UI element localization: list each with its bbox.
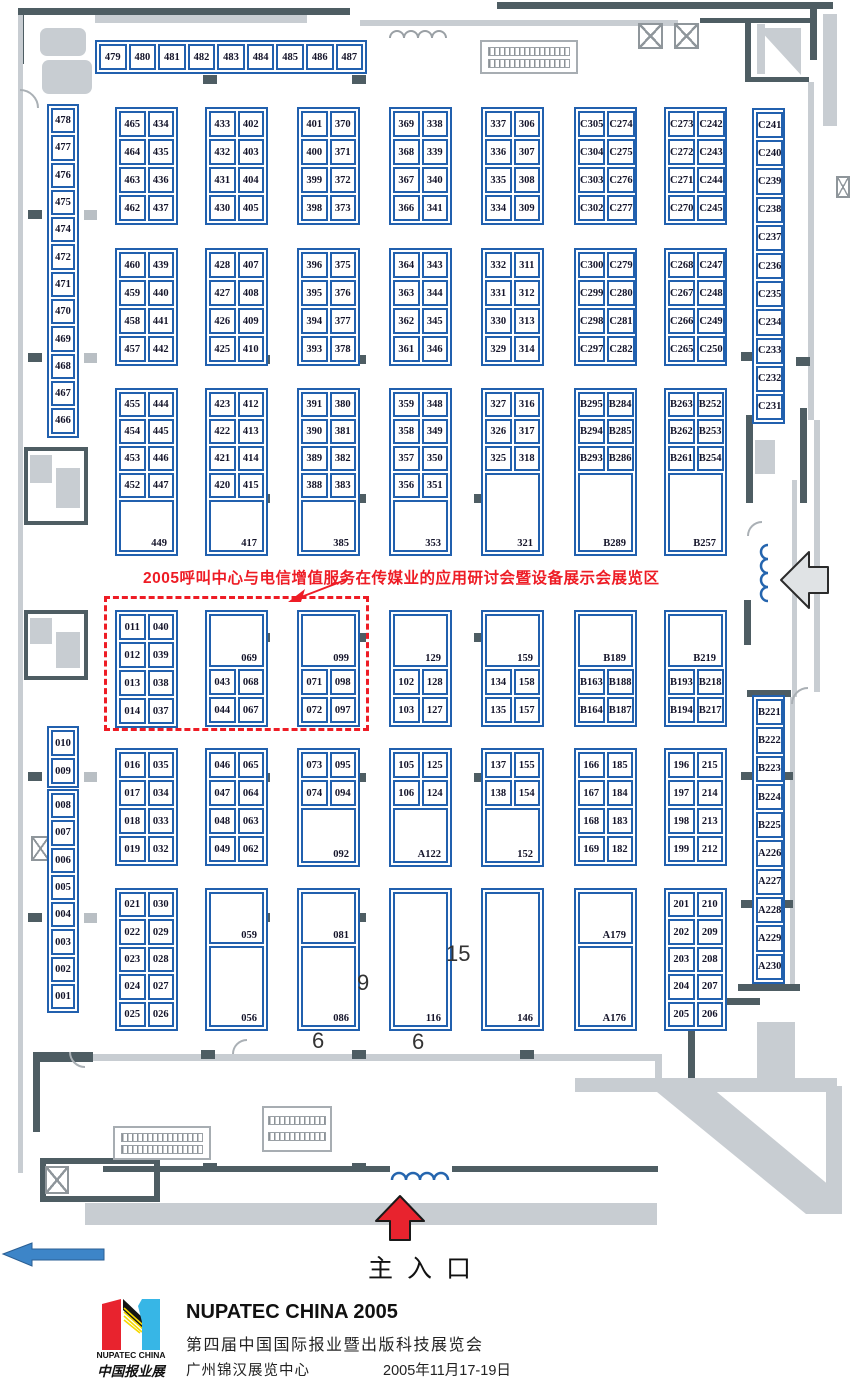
- booth-001[interactable]: 001: [51, 984, 75, 1009]
- booth-033[interactable]: 033: [148, 808, 175, 834]
- booth-B293[interactable]: B293: [578, 446, 605, 471]
- booth-152[interactable]: 152: [485, 808, 540, 863]
- booth-C271[interactable]: C271: [668, 167, 695, 193]
- booth-412[interactable]: 412: [238, 392, 265, 417]
- booth-204[interactable]: 204: [668, 974, 695, 999]
- booth-415[interactable]: 415: [238, 473, 265, 498]
- booth-472[interactable]: 472: [51, 244, 75, 269]
- booth-210[interactable]: 210: [697, 892, 724, 917]
- booth-A122[interactable]: A122: [393, 808, 448, 863]
- booth-422[interactable]: 422: [209, 419, 236, 444]
- booth-445[interactable]: 445: [148, 419, 175, 444]
- booth-135[interactable]: 135: [485, 697, 512, 723]
- booth-C302[interactable]: C302: [578, 195, 605, 221]
- booth-094[interactable]: 094: [330, 780, 357, 806]
- booth-483[interactable]: 483: [217, 44, 245, 70]
- booth-404[interactable]: 404: [238, 167, 265, 193]
- booth-086[interactable]: 086: [301, 946, 356, 1027]
- booth-316[interactable]: 316: [514, 392, 541, 417]
- booth-154[interactable]: 154: [514, 780, 541, 806]
- booth-381[interactable]: 381: [330, 419, 357, 444]
- booth-125[interactable]: 125: [422, 752, 449, 778]
- booth-367[interactable]: 367: [393, 167, 420, 193]
- booth-409[interactable]: 409: [238, 308, 265, 334]
- booth-C232[interactable]: C232: [756, 366, 783, 392]
- booth-167[interactable]: 167: [578, 780, 605, 806]
- booth-021[interactable]: 021: [119, 892, 146, 917]
- booth-C242[interactable]: C242: [697, 111, 724, 137]
- booth-C298[interactable]: C298: [578, 308, 605, 334]
- booth-048[interactable]: 048: [209, 808, 236, 834]
- booth-435[interactable]: 435: [148, 139, 175, 165]
- booth-C297[interactable]: C297: [578, 336, 605, 362]
- booth-321[interactable]: 321: [485, 473, 540, 552]
- booth-B295[interactable]: B295: [578, 392, 605, 417]
- booth-157[interactable]: 157: [514, 697, 541, 723]
- booth-B187[interactable]: B187: [607, 697, 634, 723]
- booth-474[interactable]: 474: [51, 217, 75, 242]
- booth-477[interactable]: 477: [51, 135, 75, 160]
- booth-C231[interactable]: C231: [756, 394, 783, 420]
- booth-413[interactable]: 413: [238, 419, 265, 444]
- booth-065[interactable]: 065: [238, 752, 265, 778]
- booth-C305[interactable]: C305: [578, 111, 605, 137]
- booth-309[interactable]: 309: [514, 195, 541, 221]
- booth-146[interactable]: 146: [485, 892, 540, 1027]
- booth-A176[interactable]: A176: [578, 946, 633, 1027]
- booth-B286[interactable]: B286: [607, 446, 634, 471]
- booth-470[interactable]: 470: [51, 299, 75, 324]
- booth-318[interactable]: 318: [514, 446, 541, 471]
- booth-C247[interactable]: C247: [697, 252, 724, 278]
- booth-030[interactable]: 030: [148, 892, 175, 917]
- booth-B223[interactable]: B223: [756, 756, 783, 782]
- booth-B262[interactable]: B262: [668, 419, 695, 444]
- booth-481[interactable]: 481: [158, 44, 186, 70]
- booth-361[interactable]: 361: [393, 336, 420, 362]
- booth-B188[interactable]: B188: [607, 669, 634, 695]
- booth-306[interactable]: 306: [514, 111, 541, 137]
- booth-027[interactable]: 027: [148, 974, 175, 999]
- booth-C244[interactable]: C244: [697, 167, 724, 193]
- booth-017[interactable]: 017: [119, 780, 146, 806]
- booth-437[interactable]: 437: [148, 195, 175, 221]
- booth-428[interactable]: 428: [209, 252, 236, 278]
- booth-059[interactable]: 059: [209, 892, 264, 944]
- booth-363[interactable]: 363: [393, 280, 420, 306]
- booth-427[interactable]: 427: [209, 280, 236, 306]
- booth-105[interactable]: 105: [393, 752, 420, 778]
- booth-C237[interactable]: C237: [756, 225, 783, 251]
- booth-414[interactable]: 414: [238, 446, 265, 471]
- booth-452[interactable]: 452: [119, 473, 146, 498]
- booth-405[interactable]: 405: [238, 195, 265, 221]
- booth-B163[interactable]: B163: [578, 669, 605, 695]
- booth-331[interactable]: 331: [485, 280, 512, 306]
- booth-349[interactable]: 349: [422, 419, 449, 444]
- booth-159[interactable]: 159: [485, 614, 540, 667]
- booth-330[interactable]: 330: [485, 308, 512, 334]
- booth-A179[interactable]: A179: [578, 892, 633, 944]
- booth-375[interactable]: 375: [330, 252, 357, 278]
- booth-339[interactable]: 339: [422, 139, 449, 165]
- booth-206[interactable]: 206: [697, 1002, 724, 1027]
- booth-484[interactable]: 484: [247, 44, 275, 70]
- booth-455[interactable]: 455: [119, 392, 146, 417]
- booth-326[interactable]: 326: [485, 419, 512, 444]
- booth-129[interactable]: 129: [393, 614, 448, 667]
- booth-378[interactable]: 378: [330, 336, 357, 362]
- booth-345[interactable]: 345: [422, 308, 449, 334]
- booth-426[interactable]: 426: [209, 308, 236, 334]
- booth-B257[interactable]: B257: [668, 473, 723, 552]
- booth-325[interactable]: 325: [485, 446, 512, 471]
- booth-B285[interactable]: B285: [607, 419, 634, 444]
- booth-158[interactable]: 158: [514, 669, 541, 695]
- booth-016[interactable]: 016: [119, 752, 146, 778]
- booth-329[interactable]: 329: [485, 336, 512, 362]
- booth-B284[interactable]: B284: [607, 392, 634, 417]
- booth-A226[interactable]: A226: [756, 840, 783, 866]
- booth-207[interactable]: 207: [697, 974, 724, 999]
- booth-436[interactable]: 436: [148, 167, 175, 193]
- booth-432[interactable]: 432: [209, 139, 236, 165]
- booth-332[interactable]: 332: [485, 252, 512, 278]
- booth-C276[interactable]: C276: [607, 167, 634, 193]
- booth-370[interactable]: 370: [330, 111, 357, 137]
- booth-009[interactable]: 009: [51, 758, 75, 784]
- booth-487[interactable]: 487: [336, 44, 364, 70]
- booth-063[interactable]: 063: [238, 808, 265, 834]
- booth-C279[interactable]: C279: [607, 252, 634, 278]
- booth-B225[interactable]: B225: [756, 812, 783, 838]
- booth-308[interactable]: 308: [514, 167, 541, 193]
- booth-486[interactable]: 486: [306, 44, 334, 70]
- booth-208[interactable]: 208: [697, 947, 724, 972]
- booth-C300[interactable]: C300: [578, 252, 605, 278]
- booth-449[interactable]: 449: [119, 500, 174, 552]
- booth-459[interactable]: 459: [119, 280, 146, 306]
- booth-B289[interactable]: B289: [578, 473, 633, 552]
- booth-062[interactable]: 062: [238, 836, 265, 862]
- booth-479[interactable]: 479: [99, 44, 127, 70]
- booth-336[interactable]: 336: [485, 139, 512, 165]
- booth-362[interactable]: 362: [393, 308, 420, 334]
- booth-213[interactable]: 213: [697, 808, 724, 834]
- booth-394[interactable]: 394: [301, 308, 328, 334]
- booth-344[interactable]: 344: [422, 280, 449, 306]
- booth-137[interactable]: 137: [485, 752, 512, 778]
- booth-464[interactable]: 464: [119, 139, 146, 165]
- booth-C240[interactable]: C240: [756, 140, 783, 166]
- booth-C282[interactable]: C282: [607, 336, 634, 362]
- booth-064[interactable]: 064: [238, 780, 265, 806]
- booth-353[interactable]: 353: [393, 500, 448, 552]
- booth-C266[interactable]: C266: [668, 308, 695, 334]
- booth-371[interactable]: 371: [330, 139, 357, 165]
- booth-B221[interactable]: B221: [756, 699, 783, 725]
- booth-391[interactable]: 391: [301, 392, 328, 417]
- booth-356[interactable]: 356: [393, 473, 420, 498]
- booth-166[interactable]: 166: [578, 752, 605, 778]
- booth-134[interactable]: 134: [485, 669, 512, 695]
- booth-421[interactable]: 421: [209, 446, 236, 471]
- booth-393[interactable]: 393: [301, 336, 328, 362]
- booth-C304[interactable]: C304: [578, 139, 605, 165]
- booth-366[interactable]: 366: [393, 195, 420, 221]
- booth-182[interactable]: 182: [607, 836, 634, 862]
- booth-465[interactable]: 465: [119, 111, 146, 137]
- booth-081[interactable]: 081: [301, 892, 356, 944]
- booth-A227[interactable]: A227: [756, 869, 783, 895]
- booth-138[interactable]: 138: [485, 780, 512, 806]
- booth-034[interactable]: 034: [148, 780, 175, 806]
- booth-368[interactable]: 368: [393, 139, 420, 165]
- booth-A228[interactable]: A228: [756, 897, 783, 923]
- booth-C265[interactable]: C265: [668, 336, 695, 362]
- booth-C275[interactable]: C275: [607, 139, 634, 165]
- booth-B254[interactable]: B254: [697, 446, 724, 471]
- booth-B252[interactable]: B252: [697, 392, 724, 417]
- booth-004[interactable]: 004: [51, 902, 75, 927]
- booth-357[interactable]: 357: [393, 446, 420, 471]
- booth-025[interactable]: 025: [119, 1002, 146, 1027]
- booth-480[interactable]: 480: [129, 44, 157, 70]
- booth-343[interactable]: 343: [422, 252, 449, 278]
- booth-317[interactable]: 317: [514, 419, 541, 444]
- booth-202[interactable]: 202: [668, 919, 695, 944]
- booth-430[interactable]: 430: [209, 195, 236, 221]
- booth-198[interactable]: 198: [668, 808, 695, 834]
- booth-485[interactable]: 485: [276, 44, 304, 70]
- booth-C281[interactable]: C281: [607, 308, 634, 334]
- booth-102[interactable]: 102: [393, 669, 420, 695]
- booth-402[interactable]: 402: [238, 111, 265, 137]
- booth-398[interactable]: 398: [301, 195, 328, 221]
- booth-196[interactable]: 196: [668, 752, 695, 778]
- booth-311[interactable]: 311: [514, 252, 541, 278]
- booth-168[interactable]: 168: [578, 808, 605, 834]
- booth-155[interactable]: 155: [514, 752, 541, 778]
- booth-C303[interactable]: C303: [578, 167, 605, 193]
- booth-454[interactable]: 454: [119, 419, 146, 444]
- booth-095[interactable]: 095: [330, 752, 357, 778]
- booth-008[interactable]: 008: [51, 793, 75, 818]
- booth-C299[interactable]: C299: [578, 280, 605, 306]
- booth-373[interactable]: 373: [330, 195, 357, 221]
- booth-103[interactable]: 103: [393, 697, 420, 723]
- booth-337[interactable]: 337: [485, 111, 512, 137]
- booth-307[interactable]: 307: [514, 139, 541, 165]
- booth-C268[interactable]: C268: [668, 252, 695, 278]
- booth-C267[interactable]: C267: [668, 280, 695, 306]
- booth-401[interactable]: 401: [301, 111, 328, 137]
- booth-C270[interactable]: C270: [668, 195, 695, 221]
- booth-396[interactable]: 396: [301, 252, 328, 278]
- booth-462[interactable]: 462: [119, 195, 146, 221]
- booth-369[interactable]: 369: [393, 111, 420, 137]
- booth-005[interactable]: 005: [51, 875, 75, 900]
- booth-468[interactable]: 468: [51, 354, 75, 379]
- booth-420[interactable]: 420: [209, 473, 236, 498]
- booth-C274[interactable]: C274: [607, 111, 634, 137]
- booth-399[interactable]: 399: [301, 167, 328, 193]
- booth-327[interactable]: 327: [485, 392, 512, 417]
- booth-425[interactable]: 425: [209, 336, 236, 362]
- booth-453[interactable]: 453: [119, 446, 146, 471]
- booth-018[interactable]: 018: [119, 808, 146, 834]
- booth-073[interactable]: 073: [301, 752, 328, 778]
- booth-C238[interactable]: C238: [756, 197, 783, 223]
- booth-446[interactable]: 446: [148, 446, 175, 471]
- booth-C243[interactable]: C243: [697, 139, 724, 165]
- booth-442[interactable]: 442: [148, 336, 175, 362]
- booth-C245[interactable]: C245: [697, 195, 724, 221]
- booth-478[interactable]: 478: [51, 108, 75, 133]
- booth-364[interactable]: 364: [393, 252, 420, 278]
- booth-351[interactable]: 351: [422, 473, 449, 498]
- booth-C248[interactable]: C248: [697, 280, 724, 306]
- booth-024[interactable]: 024: [119, 974, 146, 999]
- booth-423[interactable]: 423: [209, 392, 236, 417]
- booth-433[interactable]: 433: [209, 111, 236, 137]
- booth-215[interactable]: 215: [697, 752, 724, 778]
- booth-389[interactable]: 389: [301, 446, 328, 471]
- booth-056[interactable]: 056: [209, 946, 264, 1027]
- booth-457[interactable]: 457: [119, 336, 146, 362]
- booth-023[interactable]: 023: [119, 947, 146, 972]
- booth-127[interactable]: 127: [422, 697, 449, 723]
- booth-A230[interactable]: A230: [756, 954, 783, 980]
- booth-B224[interactable]: B224: [756, 784, 783, 810]
- booth-C234[interactable]: C234: [756, 309, 783, 335]
- booth-B194[interactable]: B194: [668, 697, 695, 723]
- booth-463[interactable]: 463: [119, 167, 146, 193]
- booth-128[interactable]: 128: [422, 669, 449, 695]
- booth-214[interactable]: 214: [697, 780, 724, 806]
- booth-010[interactable]: 010: [51, 730, 75, 756]
- booth-431[interactable]: 431: [209, 167, 236, 193]
- booth-334[interactable]: 334: [485, 195, 512, 221]
- booth-388[interactable]: 388: [301, 473, 328, 498]
- booth-C239[interactable]: C239: [756, 168, 783, 194]
- booth-B263[interactable]: B263: [668, 392, 695, 417]
- booth-201[interactable]: 201: [668, 892, 695, 917]
- booth-185[interactable]: 185: [607, 752, 634, 778]
- booth-338[interactable]: 338: [422, 111, 449, 137]
- booth-377[interactable]: 377: [330, 308, 357, 334]
- booth-047[interactable]: 047: [209, 780, 236, 806]
- booth-B261[interactable]: B261: [668, 446, 695, 471]
- booth-444[interactable]: 444: [148, 392, 175, 417]
- booth-434[interactable]: 434: [148, 111, 175, 137]
- booth-203[interactable]: 203: [668, 947, 695, 972]
- booth-C235[interactable]: C235: [756, 281, 783, 307]
- booth-467[interactable]: 467: [51, 381, 75, 406]
- booth-372[interactable]: 372: [330, 167, 357, 193]
- booth-049[interactable]: 049: [209, 836, 236, 862]
- booth-C273[interactable]: C273: [668, 111, 695, 137]
- booth-B222[interactable]: B222: [756, 727, 783, 753]
- booth-007[interactable]: 007: [51, 820, 75, 845]
- booth-359[interactable]: 359: [393, 392, 420, 417]
- booth-440[interactable]: 440: [148, 280, 175, 306]
- booth-028[interactable]: 028: [148, 947, 175, 972]
- booth-199[interactable]: 199: [668, 836, 695, 862]
- booth-482[interactable]: 482: [188, 44, 216, 70]
- booth-400[interactable]: 400: [301, 139, 328, 165]
- booth-312[interactable]: 312: [514, 280, 541, 306]
- booth-395[interactable]: 395: [301, 280, 328, 306]
- booth-197[interactable]: 197: [668, 780, 695, 806]
- booth-B193[interactable]: B193: [668, 669, 695, 695]
- booth-447[interactable]: 447: [148, 473, 175, 498]
- booth-B294[interactable]: B294: [578, 419, 605, 444]
- booth-124[interactable]: 124: [422, 780, 449, 806]
- booth-032[interactable]: 032: [148, 836, 175, 862]
- booth-046[interactable]: 046: [209, 752, 236, 778]
- booth-B164[interactable]: B164: [578, 697, 605, 723]
- booth-340[interactable]: 340: [422, 167, 449, 193]
- booth-003[interactable]: 003: [51, 929, 75, 954]
- booth-382[interactable]: 382: [330, 446, 357, 471]
- booth-469[interactable]: 469: [51, 326, 75, 351]
- booth-C241[interactable]: C241: [756, 112, 783, 138]
- booth-029[interactable]: 029: [148, 919, 175, 944]
- booth-466[interactable]: 466: [51, 408, 75, 433]
- booth-106[interactable]: 106: [393, 780, 420, 806]
- booth-350[interactable]: 350: [422, 446, 449, 471]
- booth-B217[interactable]: B217: [697, 697, 724, 723]
- booth-335[interactable]: 335: [485, 167, 512, 193]
- booth-B253[interactable]: B253: [697, 419, 724, 444]
- booth-383[interactable]: 383: [330, 473, 357, 498]
- booth-B218[interactable]: B218: [697, 669, 724, 695]
- booth-348[interactable]: 348: [422, 392, 449, 417]
- booth-441[interactable]: 441: [148, 308, 175, 334]
- booth-C249[interactable]: C249: [697, 308, 724, 334]
- booth-390[interactable]: 390: [301, 419, 328, 444]
- booth-C277[interactable]: C277: [607, 195, 634, 221]
- booth-002[interactable]: 002: [51, 957, 75, 982]
- booth-346[interactable]: 346: [422, 336, 449, 362]
- booth-C272[interactable]: C272: [668, 139, 695, 165]
- booth-019[interactable]: 019: [119, 836, 146, 862]
- booth-022[interactable]: 022: [119, 919, 146, 944]
- booth-074[interactable]: 074: [301, 780, 328, 806]
- booth-205[interactable]: 205: [668, 1002, 695, 1027]
- booth-B219[interactable]: B219: [668, 614, 723, 667]
- booth-313[interactable]: 313: [514, 308, 541, 334]
- booth-458[interactable]: 458: [119, 308, 146, 334]
- booth-026[interactable]: 026: [148, 1002, 175, 1027]
- booth-184[interactable]: 184: [607, 780, 634, 806]
- booth-410[interactable]: 410: [238, 336, 265, 362]
- booth-A229[interactable]: A229: [756, 925, 783, 951]
- booth-385[interactable]: 385: [301, 500, 356, 552]
- booth-212[interactable]: 212: [697, 836, 724, 862]
- booth-006[interactable]: 006: [51, 848, 75, 873]
- booth-C250[interactable]: C250: [697, 336, 724, 362]
- booth-358[interactable]: 358: [393, 419, 420, 444]
- booth-209[interactable]: 209: [697, 919, 724, 944]
- booth-183[interactable]: 183: [607, 808, 634, 834]
- booth-376[interactable]: 376: [330, 280, 357, 306]
- booth-407[interactable]: 407: [238, 252, 265, 278]
- booth-408[interactable]: 408: [238, 280, 265, 306]
- booth-C233[interactable]: C233: [756, 338, 783, 364]
- booth-341[interactable]: 341: [422, 195, 449, 221]
